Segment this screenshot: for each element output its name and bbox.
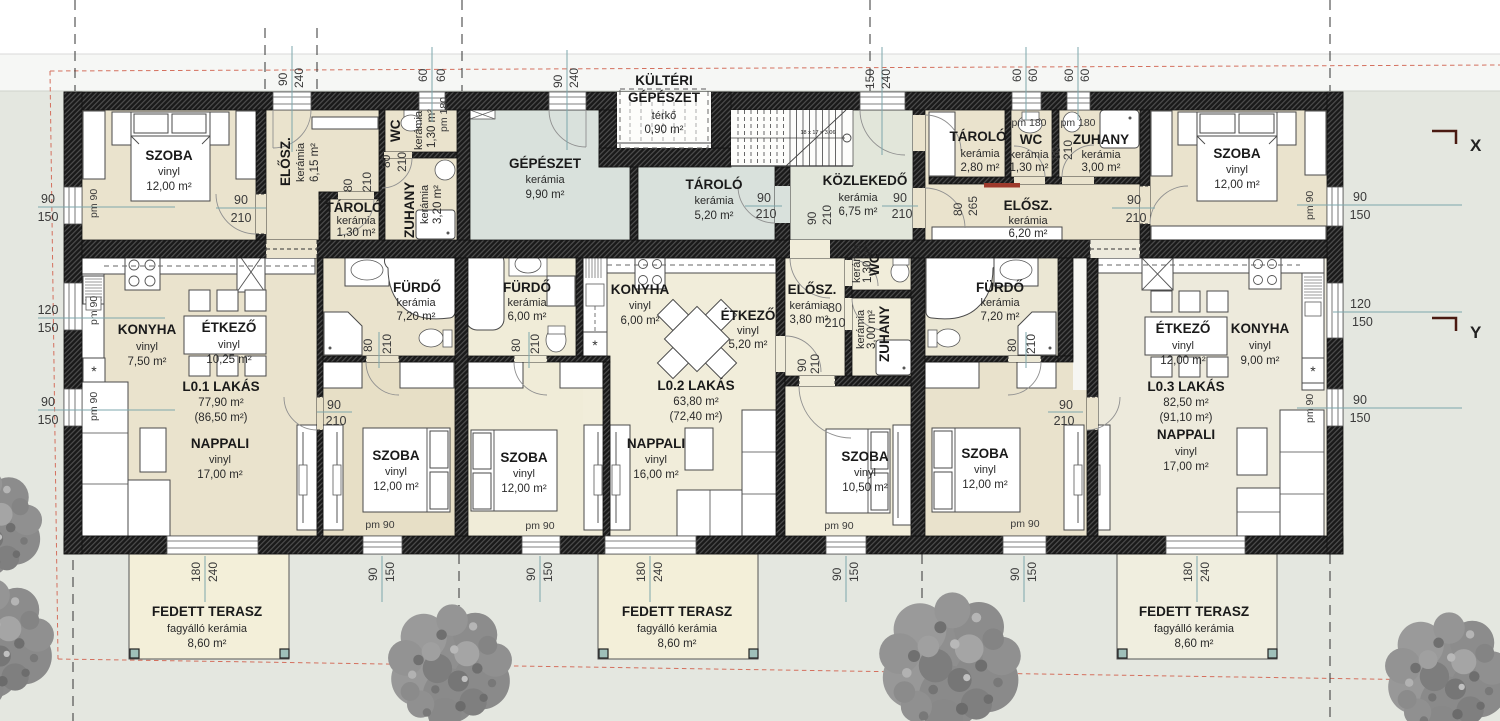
svg-text:80: 80 (828, 301, 842, 315)
svg-text:vinyl: vinyl (629, 300, 651, 312)
svg-text:240: 240 (292, 68, 306, 88)
svg-text:210: 210 (380, 334, 394, 354)
svg-text:TÁROLÓ: TÁROLÓ (326, 200, 383, 215)
svg-text:GÉPÉSZET: GÉPÉSZET (628, 90, 701, 105)
svg-text:9,00 m²: 9,00 m² (1241, 355, 1280, 367)
svg-text:240: 240 (879, 69, 893, 89)
svg-text:0,90 m²: 0,90 m² (645, 124, 684, 136)
svg-text:210: 210 (326, 414, 347, 428)
svg-text:90: 90 (327, 398, 341, 412)
svg-text:3,00 m²: 3,00 m² (866, 310, 878, 349)
svg-text:SZOBA: SZOBA (1213, 146, 1261, 161)
svg-text:vinyl: vinyl (513, 468, 535, 480)
svg-text:vinyl: vinyl (1249, 340, 1271, 352)
svg-text:SZOBA: SZOBA (145, 148, 193, 163)
svg-text:210: 210 (756, 207, 777, 221)
svg-text:FEDETT TERASZ: FEDETT TERASZ (152, 604, 262, 619)
svg-text:*: * (592, 337, 598, 353)
svg-text:150: 150 (847, 562, 861, 582)
svg-text:kerámia: kerámia (960, 148, 1000, 160)
svg-text:90: 90 (41, 192, 55, 206)
svg-text:5,20 m²: 5,20 m² (695, 210, 734, 222)
svg-text:210: 210 (825, 316, 846, 330)
svg-text:kerámia: kerámia (525, 174, 565, 186)
svg-text:2,80 m²: 2,80 m² (961, 162, 1000, 174)
svg-text:90: 90 (1127, 193, 1141, 207)
svg-text:KONYHA: KONYHA (118, 322, 177, 337)
svg-text:80: 80 (361, 338, 375, 352)
svg-text:pm 90: pm 90 (88, 392, 100, 421)
svg-text:fagyálló kerámia: fagyálló kerámia (167, 623, 248, 635)
svg-text:1,30 m²: 1,30 m² (862, 244, 874, 283)
svg-text:150: 150 (383, 562, 397, 582)
svg-text:60: 60 (416, 68, 430, 82)
svg-text:12,00 m²: 12,00 m² (373, 481, 419, 493)
svg-text:ZUHANY: ZUHANY (877, 306, 892, 362)
svg-text:90: 90 (805, 211, 819, 225)
svg-text:180: 180 (189, 562, 203, 582)
svg-text:7,20 m²: 7,20 m² (397, 311, 436, 323)
svg-text:18 x 17 = 3,06: 18 x 17 = 3,06 (800, 130, 835, 136)
svg-text:90: 90 (757, 191, 771, 205)
svg-text:90: 90 (551, 74, 565, 88)
svg-text:180: 180 (1181, 562, 1195, 582)
svg-text:9,90 m²: 9,90 m² (526, 189, 565, 201)
svg-text:kerámia: kerámia (980, 297, 1020, 309)
svg-text:90: 90 (795, 358, 809, 372)
svg-text:210: 210 (528, 334, 542, 354)
svg-text:fagyálló kerámia: fagyálló kerámia (1154, 623, 1235, 635)
svg-text:vinyl: vinyl (974, 464, 996, 476)
svg-text:5,20 m²: 5,20 m² (729, 339, 768, 351)
svg-text:kerámia: kerámia (1008, 215, 1048, 227)
svg-text:120: 120 (38, 303, 59, 317)
svg-text:kerámia: kerámia (838, 192, 878, 204)
svg-text:63,80 m²: 63,80 m² (673, 396, 719, 408)
svg-text:90: 90 (366, 567, 380, 581)
svg-text:pm 180: pm 180 (1011, 117, 1046, 129)
svg-text:60: 60 (1026, 68, 1040, 82)
svg-text:7,20 m²: 7,20 m² (981, 311, 1020, 323)
svg-text:80: 80 (951, 202, 965, 216)
svg-text:FÜRDŐ: FÜRDŐ (393, 280, 441, 295)
svg-text:vinyl: vinyl (1226, 164, 1248, 176)
svg-text:150: 150 (38, 321, 59, 335)
svg-text:77,90 m²: 77,90 m² (198, 397, 244, 409)
svg-text:90: 90 (524, 567, 538, 581)
svg-text:térkő: térkő (652, 110, 676, 122)
svg-text:SZOBA: SZOBA (372, 448, 420, 463)
svg-text:3,00 m²: 3,00 m² (1082, 162, 1121, 174)
svg-text:8,60 m²: 8,60 m² (658, 638, 697, 650)
svg-text:150: 150 (1352, 315, 1373, 329)
svg-text:60: 60 (1062, 68, 1076, 82)
svg-text:150: 150 (541, 562, 555, 582)
svg-text:pm 90: pm 90 (88, 296, 100, 325)
svg-text:L0.2 LAKÁS: L0.2 LAKÁS (657, 378, 734, 393)
svg-text:vinyl: vinyl (385, 466, 407, 478)
svg-text:ZUHANY: ZUHANY (402, 182, 417, 238)
svg-text:16,00 m²: 16,00 m² (633, 469, 679, 481)
svg-text:pm 90: pm 90 (365, 519, 394, 531)
svg-text:80: 80 (509, 338, 523, 352)
svg-text:fagyálló kerámia: fagyálló kerámia (637, 623, 718, 635)
svg-text:(86,50 m²): (86,50 m²) (194, 412, 247, 424)
svg-text:12,00 m²: 12,00 m² (501, 483, 547, 495)
svg-text:NAPPALI: NAPPALI (1157, 427, 1215, 442)
svg-text:1,30 m²: 1,30 m² (337, 227, 376, 239)
svg-text:vinyl: vinyl (158, 166, 180, 178)
svg-text:90: 90 (234, 193, 248, 207)
svg-text:6,15 m²: 6,15 m² (309, 143, 321, 182)
svg-text:150: 150 (38, 413, 59, 427)
svg-text:KÜLTÉRI: KÜLTÉRI (635, 73, 693, 88)
svg-text:pm 180: pm 180 (438, 97, 450, 132)
svg-text:kerámia: kerámia (413, 110, 425, 150)
svg-text:(91,10 m²): (91,10 m²) (1159, 412, 1212, 424)
svg-text:90: 90 (893, 191, 907, 205)
svg-text:kerámia: kerámia (694, 195, 734, 207)
svg-text:90: 90 (1008, 567, 1022, 581)
svg-text:WC: WC (1020, 132, 1043, 147)
svg-text:kerámia: kerámia (507, 297, 547, 309)
svg-text:17,00 m²: 17,00 m² (197, 469, 243, 481)
svg-text:ÉTKEZŐ: ÉTKEZŐ (721, 308, 776, 323)
svg-text:KÖZLEKEDŐ: KÖZLEKEDŐ (823, 173, 908, 188)
svg-text:7,50 m²: 7,50 m² (128, 356, 167, 368)
svg-text:240: 240 (1198, 562, 1212, 582)
svg-text:kerámia: kerámia (336, 215, 376, 227)
svg-text:210: 210 (1061, 140, 1075, 160)
svg-text:kerámia: kerámia (419, 184, 431, 224)
svg-text:6,75 m²: 6,75 m² (839, 206, 878, 218)
svg-text:vinyl: vinyl (1175, 446, 1197, 458)
svg-text:pm 90: pm 90 (824, 520, 853, 532)
svg-text:L0.3 LAKÁS: L0.3 LAKÁS (1147, 379, 1224, 394)
svg-text:210: 210 (395, 152, 409, 172)
svg-text:kerámia: kerámia (789, 300, 829, 312)
svg-text:FÜRDŐ: FÜRDŐ (503, 280, 551, 295)
svg-text:90: 90 (1353, 190, 1367, 204)
svg-text:(72,40 m²): (72,40 m²) (669, 411, 722, 423)
svg-text:NAPPALI: NAPPALI (627, 436, 685, 451)
svg-text:12,00 m²: 12,00 m² (962, 479, 1008, 491)
svg-text:80: 80 (1005, 338, 1019, 352)
svg-text:60: 60 (434, 68, 448, 82)
svg-text:TÁROLÓ: TÁROLÓ (950, 129, 1007, 144)
svg-text:150: 150 (1350, 411, 1371, 425)
svg-text:pm 90: pm 90 (88, 189, 100, 218)
svg-text:90: 90 (830, 567, 844, 581)
svg-text:12,00 m²: 12,00 m² (146, 181, 192, 193)
svg-text:8,60 m²: 8,60 m² (188, 638, 227, 650)
svg-text:TÁROLÓ: TÁROLÓ (686, 177, 743, 192)
svg-text:*: * (91, 363, 97, 379)
svg-text:pm 90: pm 90 (1010, 518, 1039, 530)
svg-text:240: 240 (206, 562, 220, 582)
svg-text:210: 210 (892, 207, 913, 221)
svg-text:kerámia: kerámia (1009, 149, 1049, 161)
svg-text:12,00 m²: 12,00 m² (1214, 179, 1260, 191)
svg-text:150: 150 (863, 69, 877, 89)
svg-text:FEDETT TERASZ: FEDETT TERASZ (622, 604, 732, 619)
svg-text:vinyl: vinyl (645, 454, 667, 466)
svg-text:ELŐSZ.: ELŐSZ. (278, 137, 293, 186)
svg-text:210: 210 (360, 172, 374, 192)
svg-text:10,25 m²: 10,25 m² (206, 354, 252, 366)
svg-text:vinyl: vinyl (854, 467, 876, 479)
svg-text:6,00 m²: 6,00 m² (508, 311, 547, 323)
svg-text:210: 210 (231, 211, 252, 225)
svg-text:90: 90 (276, 72, 290, 86)
svg-text:82,50 m²: 82,50 m² (1163, 397, 1209, 409)
svg-text:265: 265 (966, 196, 980, 216)
svg-text:10,50 m²: 10,50 m² (842, 482, 888, 494)
svg-text:*: * (1310, 363, 1316, 379)
svg-text:150: 150 (38, 210, 59, 224)
svg-text:vinyl: vinyl (737, 325, 759, 337)
svg-text:6,20 m²: 6,20 m² (1009, 228, 1048, 240)
svg-text:8,60 m²: 8,60 m² (1175, 638, 1214, 650)
svg-text:ZUHANY: ZUHANY (1073, 132, 1129, 147)
svg-text:SZOBA: SZOBA (961, 446, 1009, 461)
svg-text:210: 210 (1126, 211, 1147, 225)
svg-text:pm 90: pm 90 (1304, 394, 1316, 423)
svg-text:WC: WC (388, 119, 403, 142)
svg-text:NAPPALI: NAPPALI (191, 436, 249, 451)
svg-text:120: 120 (1350, 297, 1371, 311)
svg-text:80: 80 (379, 154, 393, 168)
svg-text:12,00 m²: 12,00 m² (1160, 355, 1206, 367)
svg-text:kerámia: kerámia (295, 142, 307, 182)
svg-text:150: 150 (1350, 208, 1371, 222)
svg-text:kerámia: kerámia (1081, 149, 1121, 161)
svg-text:90: 90 (1353, 393, 1367, 407)
svg-text:pm 90: pm 90 (1304, 191, 1316, 220)
svg-text:60: 60 (1078, 68, 1092, 82)
svg-text:150: 150 (1025, 562, 1039, 582)
svg-text:KONYHA: KONYHA (1231, 321, 1290, 336)
svg-text:240: 240 (567, 68, 581, 88)
svg-text:6,00 m²: 6,00 m² (621, 315, 660, 327)
svg-text:ÉTKEZŐ: ÉTKEZŐ (1156, 321, 1211, 336)
svg-text:kerámia: kerámia (396, 297, 436, 309)
svg-text:vinyl: vinyl (209, 454, 231, 466)
svg-text:Y: Y (1470, 323, 1482, 342)
svg-text:ELŐSZ.: ELŐSZ. (1004, 198, 1053, 213)
svg-text:L0.1 LAKÁS: L0.1 LAKÁS (182, 379, 259, 394)
svg-text:210: 210 (1054, 414, 1075, 428)
svg-text:1,30 m²: 1,30 m² (1010, 162, 1049, 174)
svg-text:210: 210 (808, 354, 822, 374)
svg-text:vinyl: vinyl (218, 339, 240, 351)
svg-text:3,80 m²: 3,80 m² (790, 314, 829, 326)
svg-text:80: 80 (341, 178, 355, 192)
svg-text:GÉPÉSZET: GÉPÉSZET (509, 156, 582, 171)
svg-text:KONYHA: KONYHA (611, 282, 670, 297)
svg-text:90: 90 (1059, 398, 1073, 412)
svg-text:SZOBA: SZOBA (500, 450, 548, 465)
svg-text:210: 210 (820, 205, 834, 225)
svg-text:180: 180 (634, 562, 648, 582)
svg-text:17,00 m²: 17,00 m² (1163, 461, 1209, 473)
svg-text:X: X (1470, 136, 1482, 155)
svg-text:240: 240 (651, 562, 665, 582)
svg-text:pm 90: pm 90 (525, 520, 554, 532)
svg-text:FEDETT TERASZ: FEDETT TERASZ (1139, 604, 1249, 619)
svg-text:ÉTKEZŐ: ÉTKEZŐ (202, 320, 257, 335)
svg-text:ELŐSZ.: ELŐSZ. (788, 282, 837, 297)
svg-text:vinyl: vinyl (1172, 340, 1194, 352)
svg-text:vinyl: vinyl (136, 341, 158, 353)
svg-text:60: 60 (1010, 68, 1024, 82)
svg-text:3,20 m²: 3,20 m² (432, 185, 444, 224)
svg-text:SZOBA: SZOBA (841, 449, 889, 464)
svg-text:pm 180: pm 180 (1060, 117, 1095, 129)
svg-text:90: 90 (41, 395, 55, 409)
svg-text:FÜRDŐ: FÜRDŐ (976, 280, 1024, 295)
